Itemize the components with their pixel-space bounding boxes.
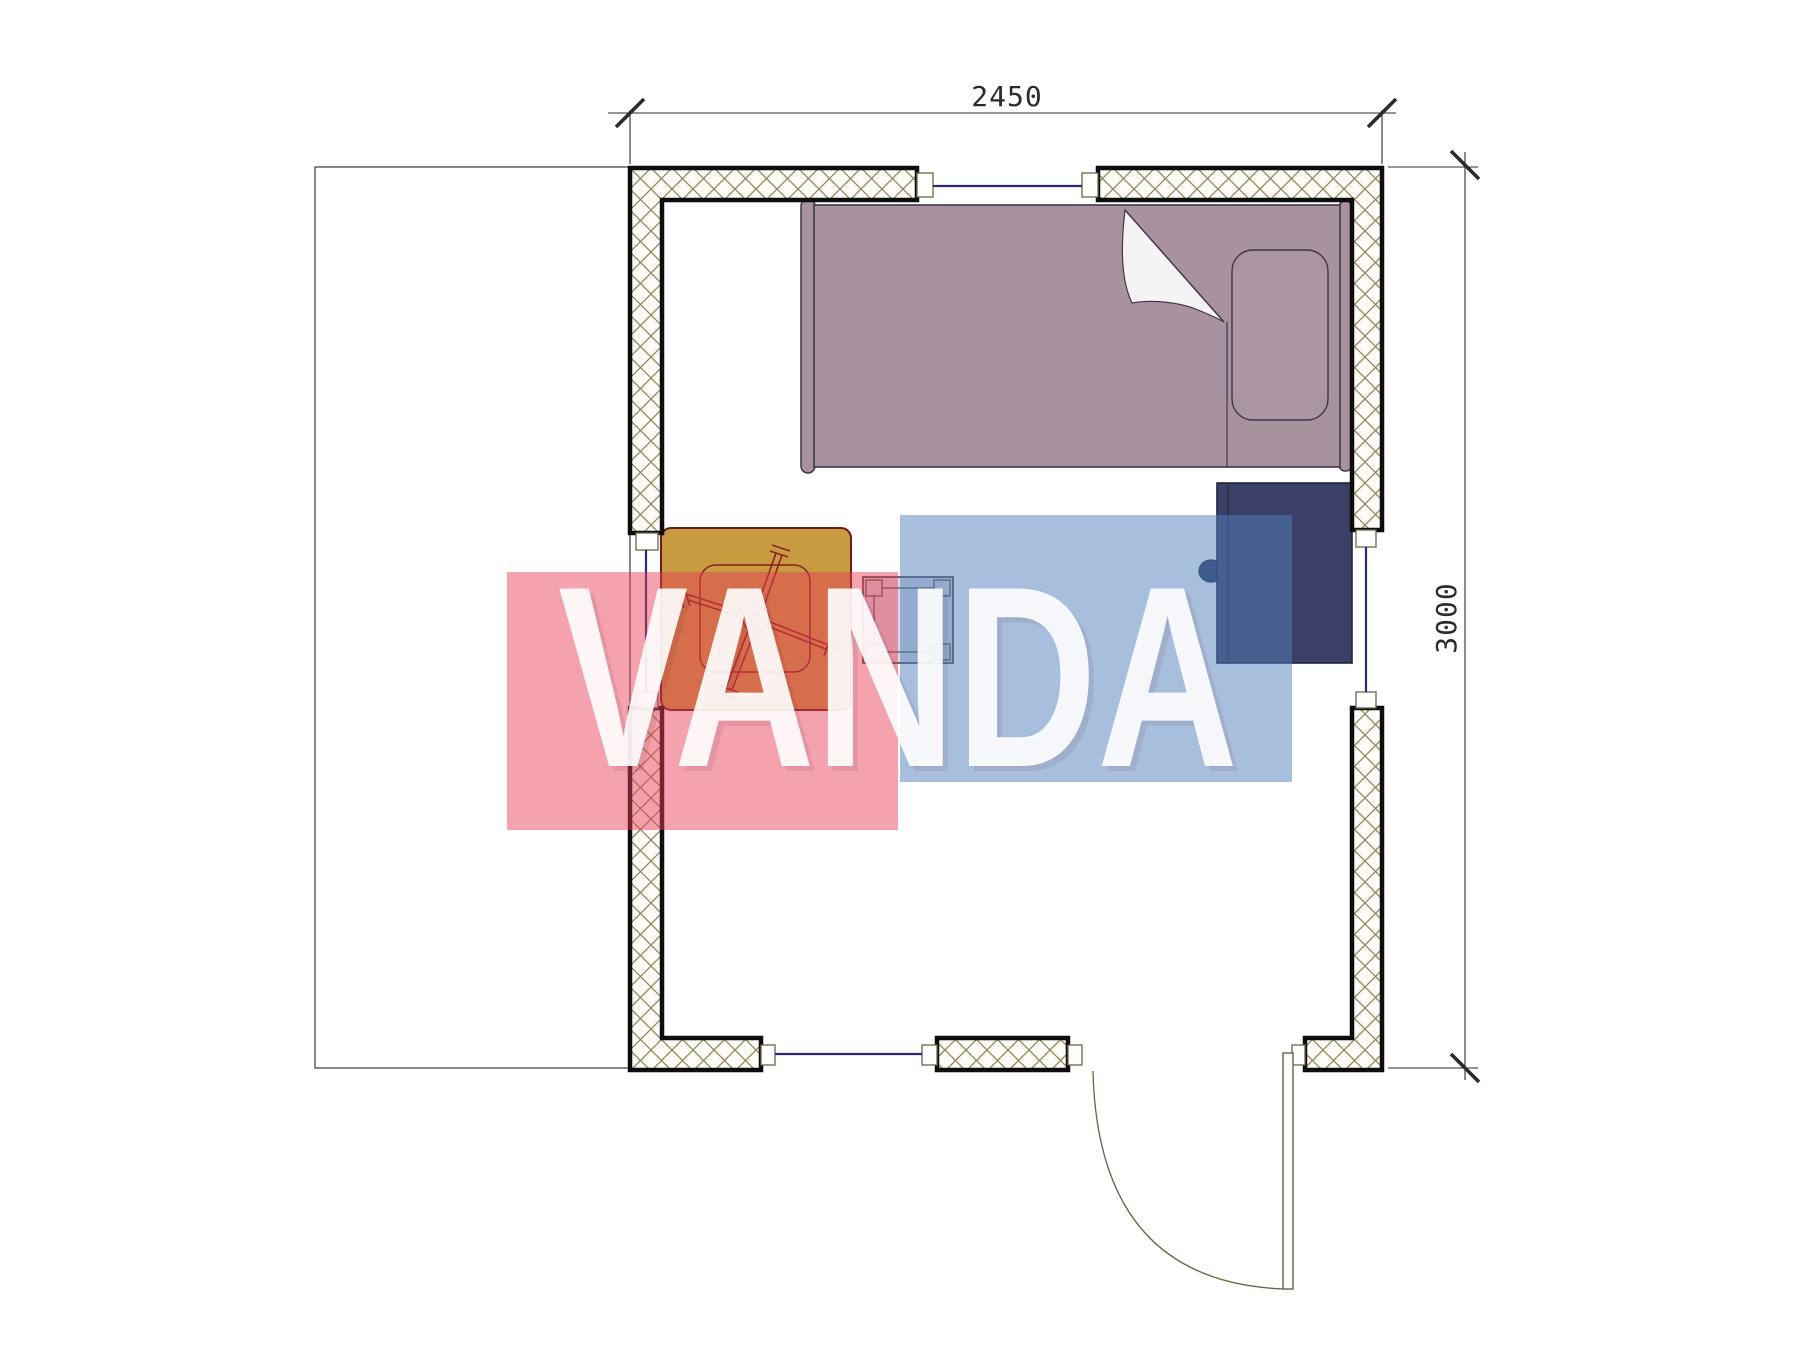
wall-bottom-right bbox=[1305, 708, 1382, 1070]
door-jamb bbox=[1292, 1045, 1305, 1065]
window-jamb bbox=[922, 1045, 937, 1065]
bed bbox=[801, 199, 1352, 473]
bed-headboard bbox=[801, 199, 815, 473]
watermark-text: VANDA bbox=[558, 532, 1238, 821]
window-jamb bbox=[1082, 173, 1098, 197]
door-jamb bbox=[1068, 1045, 1082, 1065]
dimension-label-depth: 3000 bbox=[1430, 582, 1463, 653]
floor-plan-page: 2450 3000 VANDA VANDA bbox=[0, 0, 1800, 1350]
bed-pillow bbox=[1232, 250, 1328, 420]
door-leaf bbox=[1283, 1053, 1293, 1289]
window-jamb bbox=[1356, 530, 1376, 547]
wall-bottom-middle bbox=[937, 1038, 1068, 1070]
window-jamb bbox=[917, 173, 933, 197]
door-swing-arc bbox=[1093, 1071, 1284, 1289]
window-jamb bbox=[761, 1045, 775, 1065]
watermark: VANDA VANDA bbox=[507, 515, 1292, 830]
floor-plan-drawing: 2450 3000 VANDA VANDA bbox=[0, 0, 1800, 1350]
dimension-label-width: 2450 bbox=[971, 80, 1042, 113]
window-jamb bbox=[1356, 692, 1376, 708]
entry-door bbox=[1068, 1045, 1305, 1289]
